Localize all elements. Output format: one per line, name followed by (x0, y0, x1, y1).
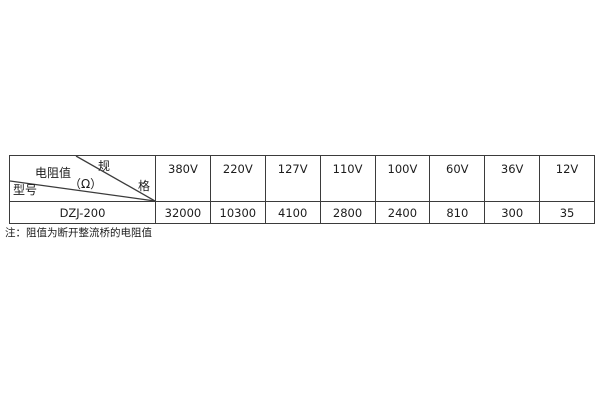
voltage-header: 100V (375, 156, 430, 201)
resistance-value: 2800 (320, 202, 375, 223)
resistance-value: 810 (429, 202, 484, 223)
resistance-value: 32000 (155, 202, 210, 223)
voltage-header: 60V (429, 156, 484, 201)
voltage-header: 110V (320, 156, 375, 201)
page: 规 格 电阻值 （Ω） 型号 380V 220V 127V 110V 100V … (0, 0, 600, 400)
resistance-value: 10300 (210, 202, 265, 223)
resistance-value: 4100 (265, 202, 320, 223)
corner-value-unit: （Ω） (69, 178, 102, 190)
voltage-header: 127V (265, 156, 320, 201)
data-row: DZJ-200 32000 10300 4100 2800 2400 810 3… (10, 201, 594, 223)
resistance-value: 2400 (375, 202, 430, 223)
corner-value-label: 电阻值 (35, 167, 71, 179)
header-row: 规 格 电阻值 （Ω） 型号 380V 220V 127V 110V 100V … (10, 156, 594, 201)
spec-table: 规 格 电阻值 （Ω） 型号 380V 220V 127V 110V 100V … (9, 155, 595, 224)
model-cell: DZJ-200 (10, 202, 155, 223)
voltage-header: 12V (539, 156, 594, 201)
corner-model-label: 型号 (13, 184, 37, 196)
footnote: 注：阻值为断开整流桥的电阻值 (5, 227, 152, 240)
corner-spec-label-top: 规 (98, 160, 110, 172)
voltage-header: 380V (155, 156, 210, 201)
resistance-value: 300 (484, 202, 539, 223)
voltage-header: 220V (210, 156, 265, 201)
resistance-value: 35 (539, 202, 594, 223)
corner-spec-label-bottom: 格 (138, 180, 150, 192)
voltage-header: 36V (484, 156, 539, 201)
diagonal-header-cell: 规 格 电阻值 （Ω） 型号 (10, 156, 155, 201)
